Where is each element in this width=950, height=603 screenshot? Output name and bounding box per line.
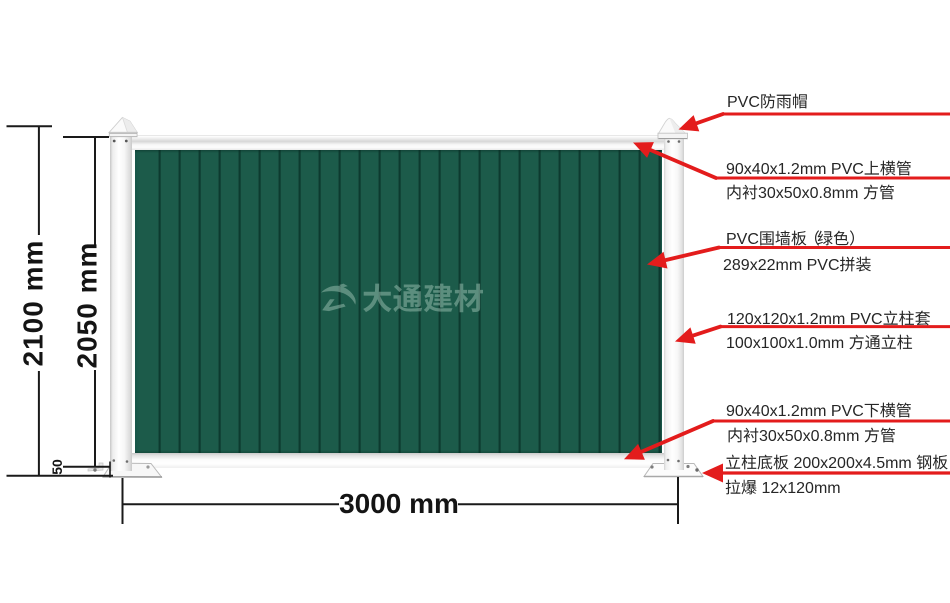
svg-text:PVC: PVC [726, 231, 759, 248]
svg-text:120x120x1.2mm PVC: 120x120x1.2mm PVC [727, 311, 883, 328]
svg-text:90x40x1.2mm PVC: 90x40x1.2mm PVC [726, 161, 864, 178]
svg-text:30x50x0.8mm: 30x50x0.8mm [758, 185, 863, 202]
svg-text:30x50x0.8mm: 30x50x0.8mm [759, 428, 864, 445]
svg-text:100x100x1.0mm: 100x100x1.0mm [726, 335, 849, 352]
svg-text:PVC: PVC [727, 94, 760, 111]
svg-text:90x40x1.2mm PVC: 90x40x1.2mm PVC [726, 403, 864, 420]
svg-text:289x22mm PVC: 289x22mm PVC [723, 257, 840, 274]
svg-text:12x120mm: 12x120mm [757, 480, 841, 497]
svg-text:200x200x4.5mm: 200x200x4.5mm [789, 455, 916, 472]
